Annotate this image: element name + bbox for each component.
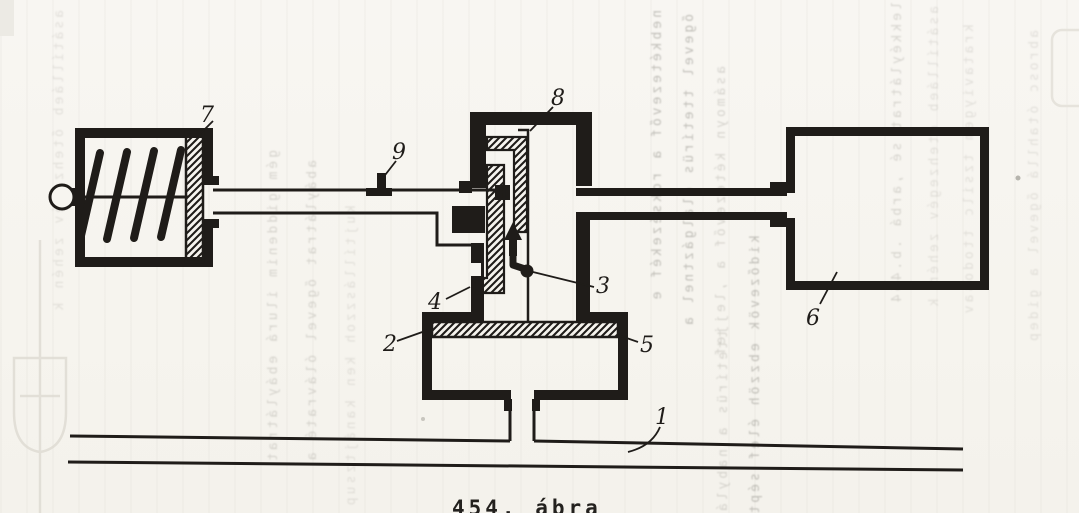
reservoir-wall-left-lower	[786, 218, 795, 290]
housing-wall-right-lower	[576, 218, 590, 315]
rod-port-tab-upper	[203, 176, 219, 185]
reservoir-part-6	[786, 127, 989, 290]
part-label-9: 9	[392, 140, 406, 165]
part-label-2: 2	[382, 332, 397, 357]
ghost-shape-right	[1052, 30, 1079, 106]
leader-4	[446, 287, 470, 299]
pipe-lower	[68, 462, 963, 470]
reservoir-wall-right	[980, 127, 989, 290]
part-label-6: 6	[806, 306, 820, 331]
ghost-flask-outline	[14, 240, 66, 513]
chamber-wall-right-lower	[203, 219, 213, 267]
leader-1	[628, 427, 660, 452]
adjustment-mark-part-9	[366, 173, 392, 196]
chamber-left-wall	[422, 312, 432, 400]
scanned-book-page: gém giddenim ilurá ebáylátrat abáylátrat…	[0, 0, 1079, 513]
housing-wall-top	[470, 112, 592, 125]
part-label-8: 8	[551, 86, 565, 111]
linkage-block	[452, 206, 485, 233]
chamber-bottom-right	[534, 390, 628, 400]
coil-spring	[80, 150, 181, 240]
part-label-4: 4	[427, 290, 442, 315]
part-label-5: 5	[640, 333, 654, 358]
diaphragm-parts-2-5	[432, 322, 618, 337]
part-label-3: 3	[596, 274, 610, 299]
part-label-1: 1	[655, 405, 669, 430]
reservoir-wall-top	[786, 127, 989, 136]
piston-part-7	[186, 132, 203, 262]
pipe-upper-right	[534, 441, 963, 449]
figure-caption: 454. ábra	[452, 496, 602, 513]
chamber-right-wall	[618, 312, 628, 400]
duct-end-tab-lower	[770, 212, 787, 227]
part-label-7: 7	[200, 103, 214, 128]
push-rod-lower-line	[213, 213, 472, 245]
brake-pipe	[68, 400, 963, 470]
figure-454-schematic: 1 2 3 4 5 6 7 8 9	[0, 0, 1079, 513]
ghost-page-edge-mark	[0, 0, 14, 36]
guide-strip-notch	[471, 263, 481, 276]
chamber-bottom-left	[422, 390, 511, 400]
ink-speck	[421, 417, 425, 421]
duct-end-tab-upper	[770, 182, 787, 196]
pipe-upper-left	[70, 436, 510, 441]
pivot-dot-part-3	[521, 265, 534, 278]
ink-speck	[1016, 176, 1021, 181]
housing-wall-left	[470, 112, 486, 188]
rod-entry-tab	[459, 181, 472, 193]
reservoir-wall-left-upper	[786, 127, 795, 193]
housing-wall-right-upper	[576, 112, 592, 186]
reservoir-wall-bottom	[786, 281, 989, 290]
duct-to-reservoir	[576, 182, 787, 227]
chamber-wall-right-upper	[203, 128, 213, 184]
pull-knob	[50, 185, 74, 209]
